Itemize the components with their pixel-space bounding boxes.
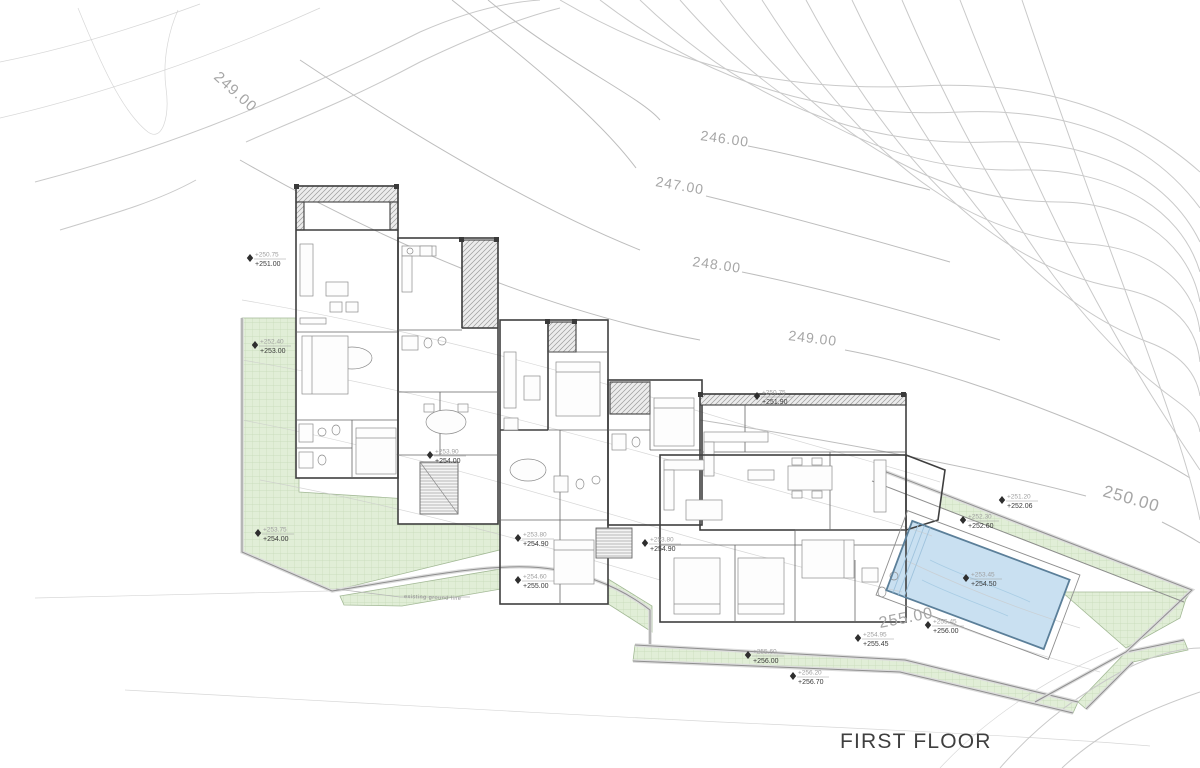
elevation-marker: +256.20+256.70 [790, 670, 829, 687]
sheet-title: FIRST FLOOR [840, 730, 1160, 754]
elevation-marker: +254.95+255.45 [855, 632, 894, 649]
elevation-marker: +250.75+251.00 [247, 252, 286, 269]
site-plan-sheet: 249.00246.00247.00248.00249.00250.00255.… [0, 0, 1200, 768]
elevation-marker: +251.20+252.06 [999, 494, 1038, 511]
green-band-bottom [633, 645, 1078, 713]
contour-label: 249.00 [210, 68, 260, 115]
existing-level-text: +250.75 [762, 390, 786, 397]
proposed-level-text: +254.00 [435, 458, 461, 465]
existing-level-text: +256.20 [798, 670, 822, 677]
existing-level-text: +253.80 [523, 532, 547, 539]
level-diamond-icon [642, 539, 648, 547]
contour-label: 248.00 [692, 253, 743, 276]
level-diamond-icon [790, 672, 796, 680]
contour-label: 246.00 [700, 127, 751, 150]
proposed-level-text: +255.00 [523, 583, 549, 590]
existing-level-text: +255.45 [933, 619, 957, 626]
level-diamond-icon [855, 634, 861, 642]
existing-level-text: +251.20 [1007, 494, 1031, 501]
contour-label: 250.00 [1101, 482, 1162, 516]
proposed-level-text: +252.06 [1007, 503, 1033, 510]
existing-level-text: +255.60 [753, 649, 777, 656]
level-diamond-icon [999, 496, 1005, 504]
proposed-level-text: +254.90 [650, 546, 676, 553]
proposed-level-text: +252.60 [968, 523, 994, 530]
existing-level-text: +253.75 [263, 527, 287, 534]
existing-level-text: +253.90 [435, 449, 459, 456]
contour-label: 247.00 [654, 173, 705, 197]
existing-level-text: +252.30 [968, 514, 992, 521]
existing-level-text: +253.45 [971, 572, 995, 579]
proposed-level-text: +256.00 [753, 658, 779, 665]
proposed-level-text: +256.70 [798, 679, 824, 686]
floor-plan-canvas: 249.00246.00247.00248.00249.00250.00255.… [0, 0, 1200, 768]
existing-level-text: +252.40 [260, 339, 284, 346]
green-wedge-pool-right [1062, 592, 1188, 648]
contour-label: 249.00 [788, 327, 838, 349]
proposed-level-text: +251.90 [762, 399, 788, 406]
existing-level-text: +254.60 [523, 574, 547, 581]
proposed-level-text: +254.50 [971, 581, 997, 588]
proposed-level-text: +254.90 [523, 541, 549, 548]
existing-level-text: +254.95 [863, 632, 887, 639]
proposed-level-text: +256.00 [933, 628, 959, 635]
proposed-level-text: +255.45 [863, 641, 889, 648]
proposed-level-text: +254.00 [263, 536, 289, 543]
existing-level-text: +250.75 [255, 252, 279, 259]
proposed-level-text: +251.00 [255, 261, 281, 268]
level-diamond-icon [247, 254, 253, 262]
proposed-level-text: +253.00 [260, 348, 286, 355]
existing-level-text: +253.80 [650, 537, 674, 544]
